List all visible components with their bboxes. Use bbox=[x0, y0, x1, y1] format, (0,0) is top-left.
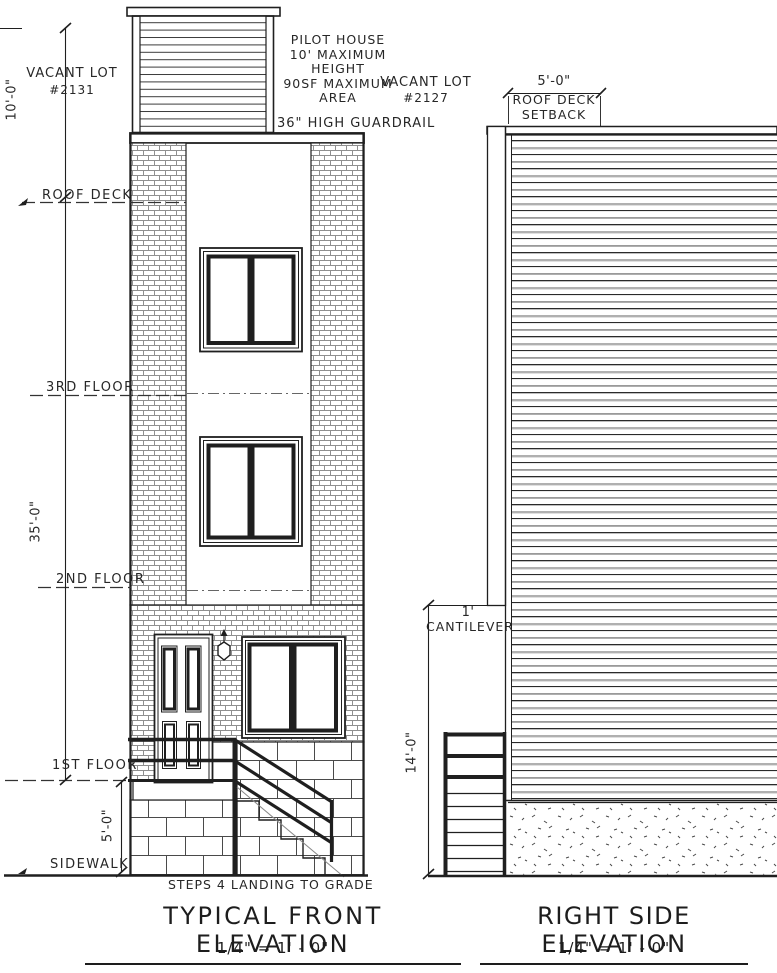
vacant-lot-right-label: VACANT LOT bbox=[366, 76, 486, 89]
setback-label-line1: ROOF DECK bbox=[506, 93, 602, 106]
pilot-house-note-line1: PILOT HOUSE bbox=[265, 33, 411, 48]
dim-pilot-house-height: 10'-0" bbox=[6, 70, 19, 130]
window-second-floor bbox=[200, 437, 302, 546]
front-elevation bbox=[0, 8, 368, 878]
side-elevation-scale: 1/4" = 1' - 0" bbox=[480, 939, 748, 957]
vacant-lot-left-label: VACANT LOT bbox=[12, 67, 132, 80]
side-siding bbox=[487, 127, 777, 801]
front-dimension-lines bbox=[0, 23, 127, 877]
pilot-house bbox=[127, 8, 280, 133]
level-first-floor: 1ST FLOOR bbox=[52, 759, 138, 772]
dim-first-floor-to-grade: 5'-0" bbox=[102, 796, 115, 856]
level-roof-deck: ROOF DECK bbox=[42, 189, 132, 202]
side-dimension-lines bbox=[423, 600, 487, 879]
dim-building-height: 35'-0" bbox=[30, 492, 43, 552]
cantilever-dimension-text: 1' bbox=[446, 606, 490, 619]
setback-dimension-text: 5'-0" bbox=[506, 75, 602, 88]
setback-label-line2: SETBACK bbox=[506, 108, 602, 121]
drawing-sheet: VACANT LOT #2131 PILOT HOUSE 10' MAXIMUM… bbox=[0, 0, 777, 973]
level-sidewalk: SIDEWALK bbox=[50, 858, 129, 871]
cantilever-label: CANTILEVER bbox=[424, 620, 516, 633]
level-third-floor: 3RD FLOOR bbox=[46, 381, 135, 394]
elevation-linework bbox=[0, 0, 777, 973]
vacant-lot-right-number: #2127 bbox=[366, 92, 486, 105]
side-elevation bbox=[423, 88, 777, 879]
dim-side-first-floor-height: 14'-0" bbox=[406, 723, 419, 783]
side-ground-hatch bbox=[428, 803, 777, 877]
window-third-floor bbox=[200, 248, 302, 352]
level-second-floor: 2ND FLOOR bbox=[56, 573, 145, 586]
pilot-house-note-line2: 10' MAXIMUM HEIGHT bbox=[265, 48, 411, 77]
guardrail-note: 36" HIGH GUARDRAIL bbox=[277, 117, 435, 130]
front-elevation-scale: 1/4" = 1' - 0" bbox=[85, 939, 461, 957]
vacant-lot-left-number: #2131 bbox=[12, 84, 132, 97]
window-first-floor bbox=[242, 637, 345, 738]
side-stair-rail bbox=[444, 732, 506, 875]
steps-note: STEPS 4 LANDING TO GRADE bbox=[168, 878, 374, 891]
